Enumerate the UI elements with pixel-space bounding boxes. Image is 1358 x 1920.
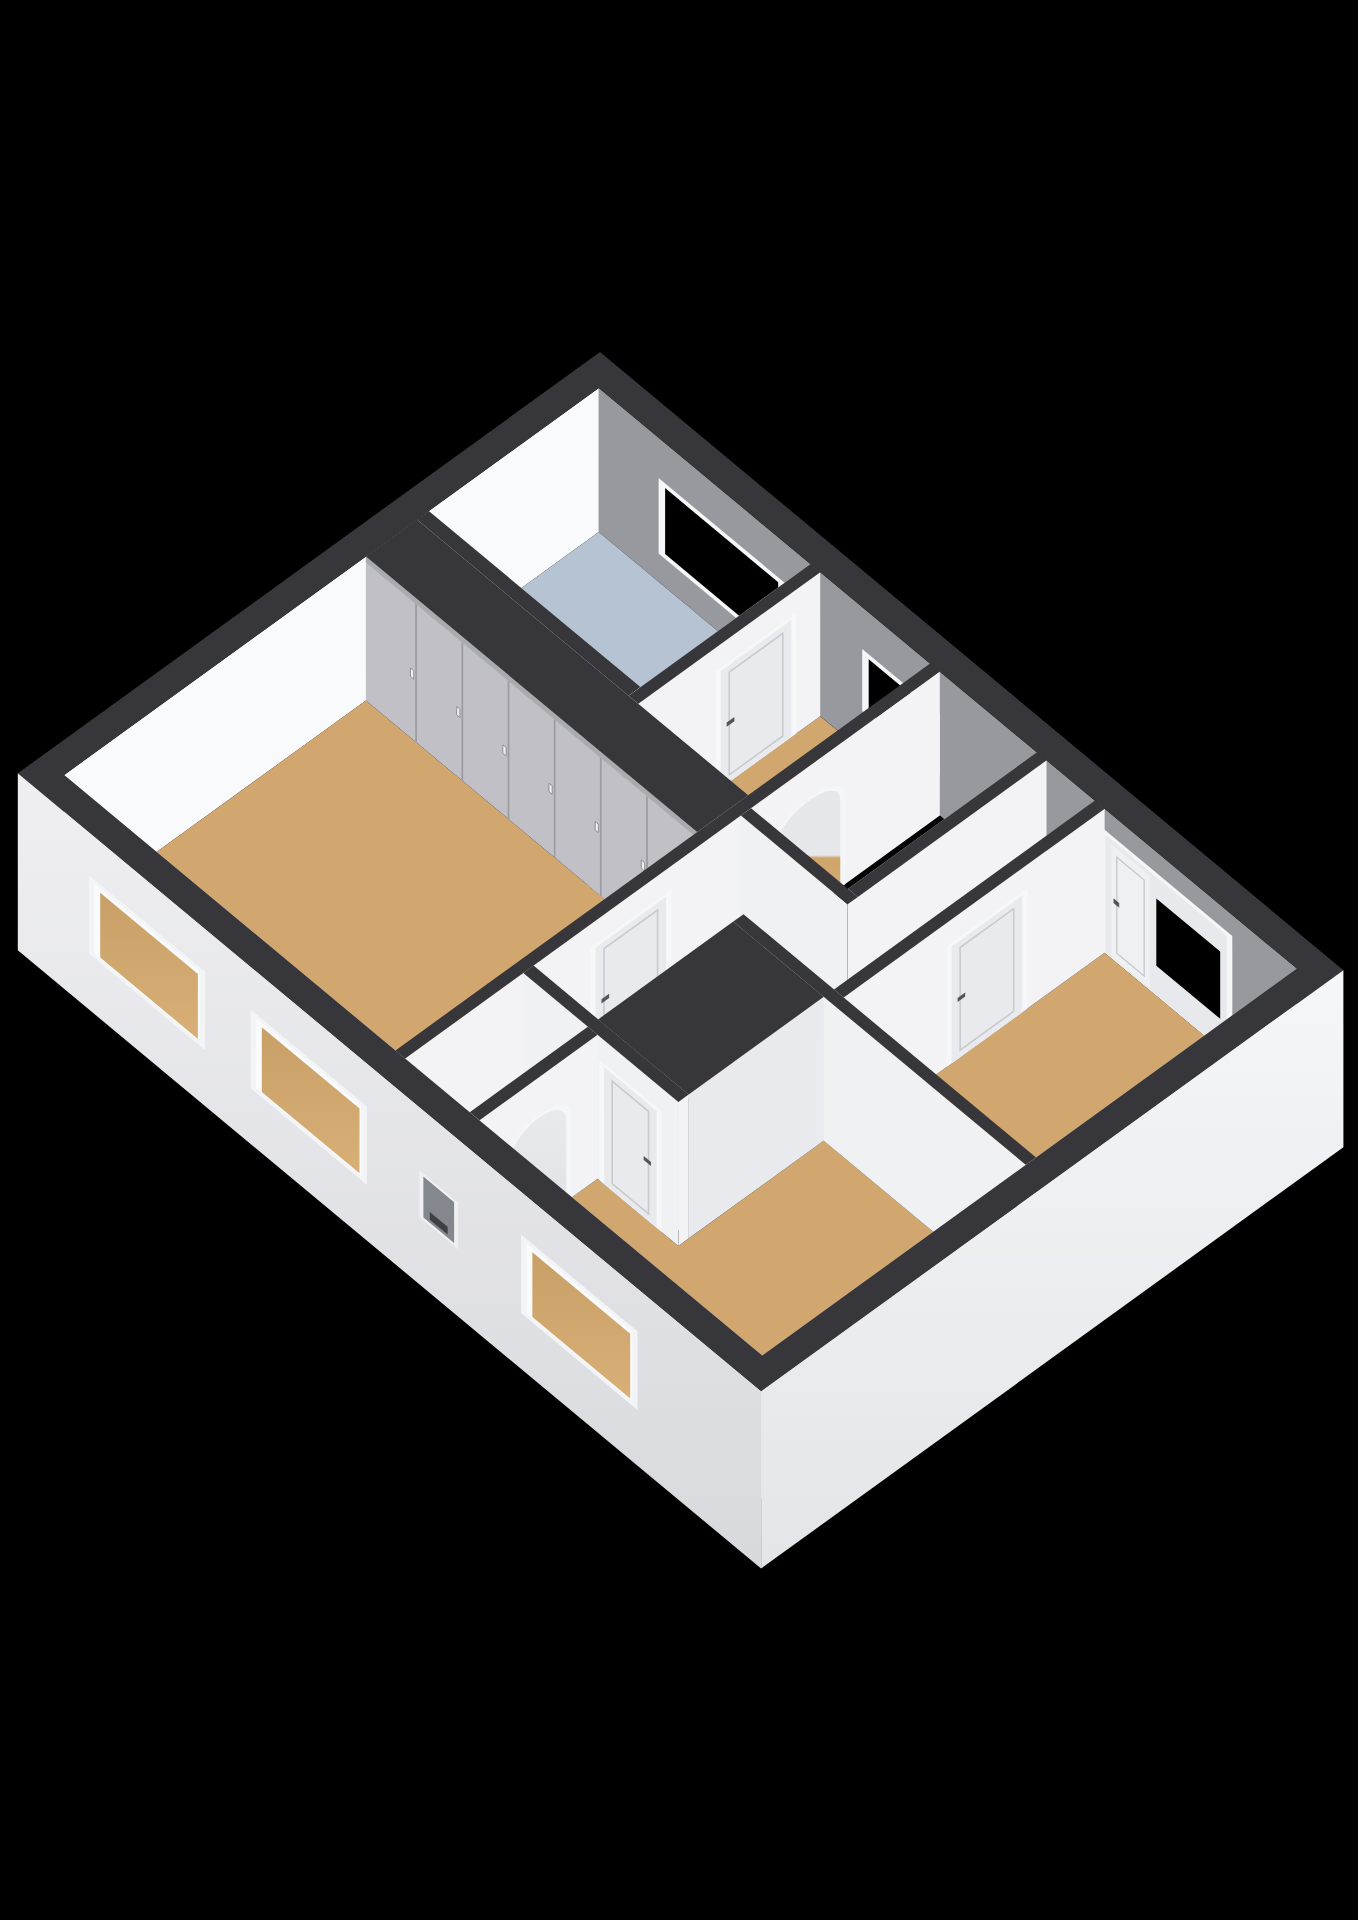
wall-face-east [678, 1095, 688, 1246]
wardrobe-door-seam [600, 757, 602, 896]
floor-plan-3d-render [0, 0, 1358, 1920]
wardrobe-door-seam [461, 642, 463, 781]
wardrobe-door-seam [554, 719, 556, 858]
wardrobe-door-seam [508, 680, 510, 819]
floor-plan-figure [0, 0, 1358, 1920]
wardrobe-door-seam [415, 604, 417, 743]
